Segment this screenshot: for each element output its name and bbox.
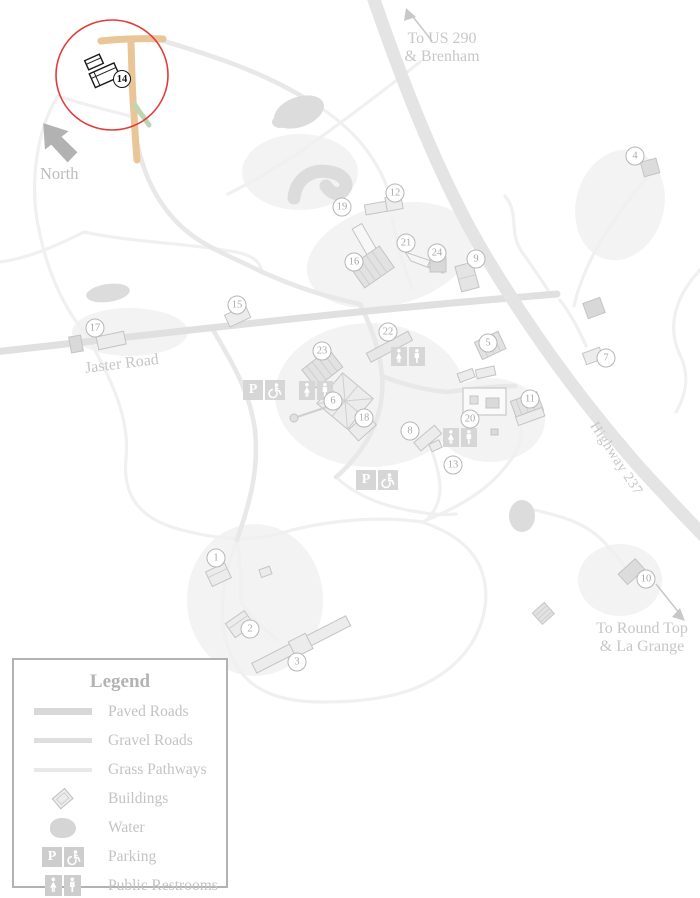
- paved-road-icon: [34, 708, 92, 715]
- legend-title: Legend: [14, 671, 226, 693]
- man-icon: [64, 875, 81, 896]
- legend-row-restrooms: Public Restrooms: [30, 875, 226, 896]
- gravel-road-icon: [34, 738, 92, 743]
- highlight-route: [101, 39, 163, 160]
- round-top-arrow: [656, 584, 685, 621]
- legend-row-paved: Paved Roads: [30, 701, 226, 722]
- highlighted-buildings-14: [85, 54, 120, 87]
- campus-map: PP To US 290 & BrenhamNorthJaster RoadHi…: [0, 0, 700, 898]
- grass-pathway-icon: [34, 768, 92, 772]
- orange-road-south: [131, 43, 137, 160]
- legend-box: Legend Paved Roads Gravel Roads Grass Pa…: [12, 658, 228, 888]
- us-290-arrow: [404, 8, 432, 41]
- legend-row-buildings: Buildings: [30, 788, 226, 809]
- woman-icon: [45, 875, 62, 896]
- legend-row-parking: P Parking: [30, 846, 226, 867]
- parking-icon: P: [42, 847, 84, 867]
- legend-row-grass: Grass Pathways: [30, 759, 226, 780]
- direction-arrows: [404, 8, 685, 621]
- buildings: [69, 158, 660, 673]
- legend-row-water: Water: [30, 817, 226, 838]
- fenced-area-20: [463, 388, 506, 415]
- legend-row-gravel: Gravel Roads: [30, 730, 226, 751]
- restrooms-icon: [45, 875, 81, 896]
- building-icon: [50, 786, 76, 812]
- water-icon: [50, 818, 76, 838]
- wheelchair-icon: [64, 847, 84, 867]
- parking-p-glyph: P: [42, 847, 62, 867]
